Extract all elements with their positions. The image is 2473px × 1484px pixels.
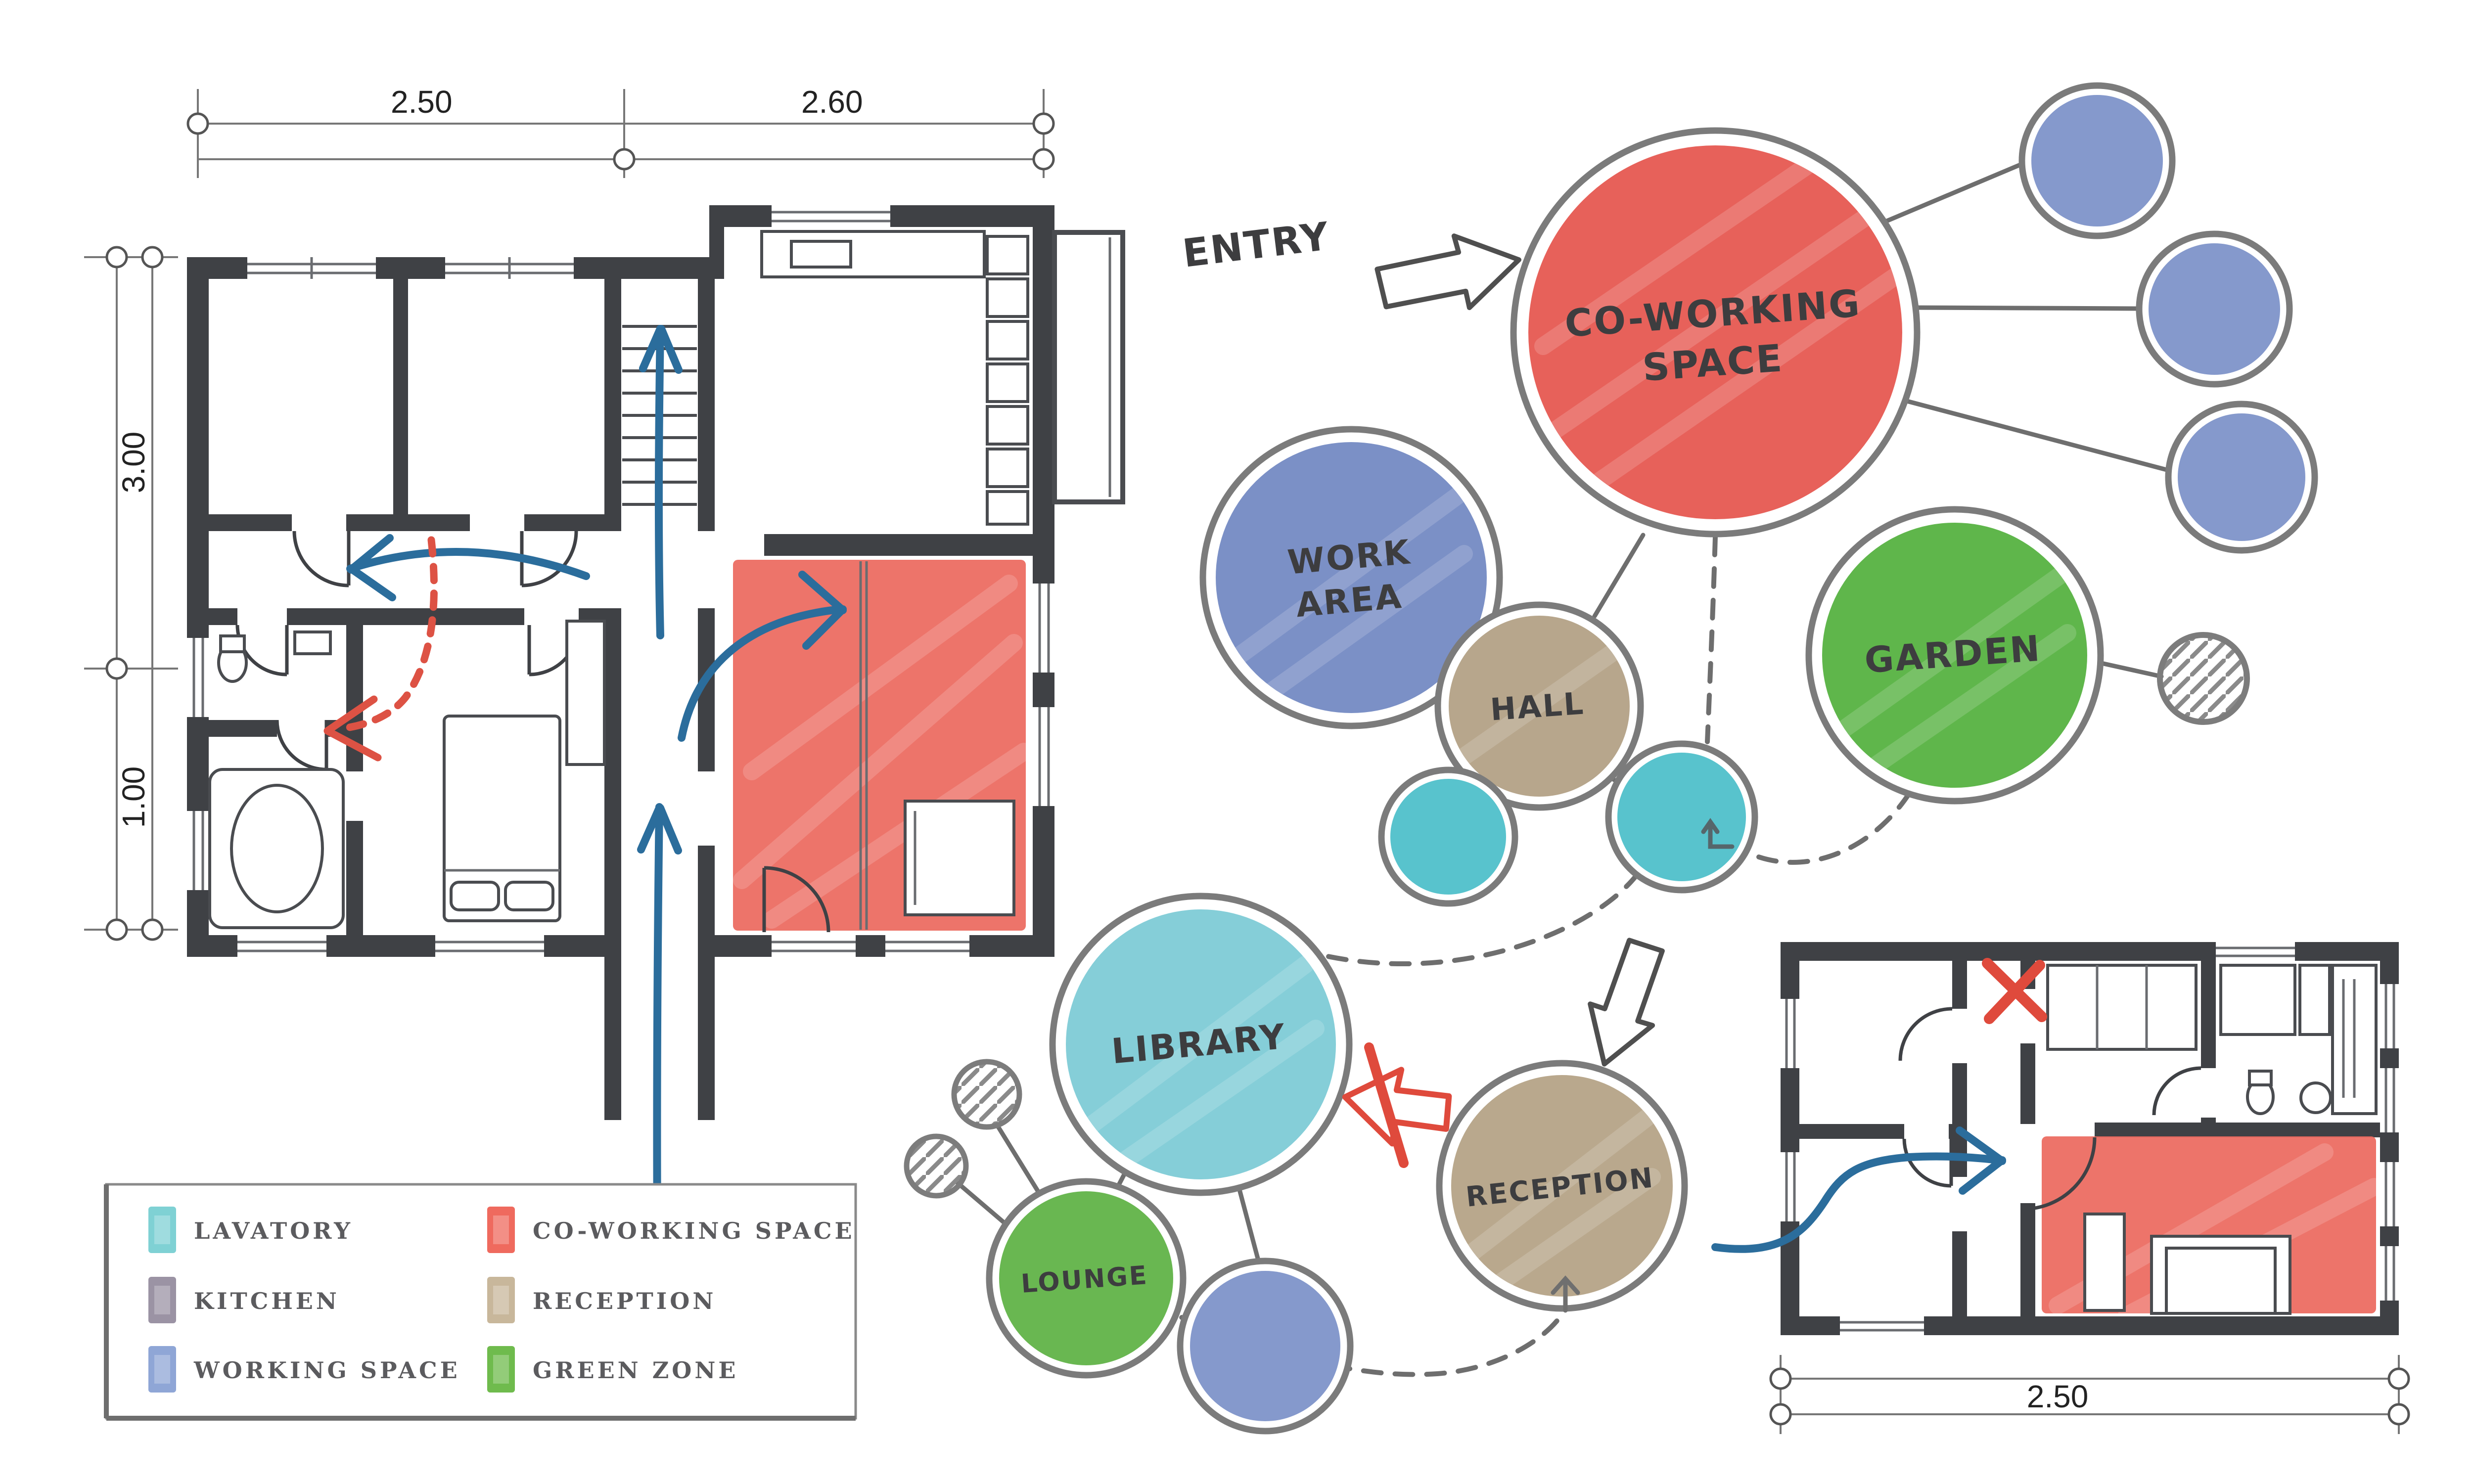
dim-100-label: 1.00 xyxy=(116,766,151,828)
concept-board: 2.50 2.60 3.00 1.00 xyxy=(0,0,2473,1484)
hall-label: HALL xyxy=(1489,685,1586,727)
svg-text:WORKING SPACE: WORKING SPACE xyxy=(193,1357,460,1384)
plan2-dim-label: 2.50 xyxy=(2027,1379,2089,1414)
svg-text:RECEPTION: RECEPTION xyxy=(533,1288,716,1314)
dim-250-label: 2.50 xyxy=(391,84,453,120)
bubble-lavatory-2 xyxy=(1608,744,1755,890)
dim-300-label: 3.00 xyxy=(116,432,151,494)
svg-text:GREEN ZONE: GREEN ZONE xyxy=(533,1357,738,1384)
hatched-bubble-garden xyxy=(2160,635,2247,722)
bubble-coworking: CO-WORKING SPACE xyxy=(1513,131,1917,534)
bubble-garden: GARDEN xyxy=(1809,509,2101,801)
dimension-top: 2.50 2.60 xyxy=(188,84,1053,178)
bubble-working-1 xyxy=(2022,86,2172,236)
svg-text:LAVATORY: LAVATORY xyxy=(194,1217,353,1244)
no-access-icon xyxy=(1339,1047,1455,1163)
entry-label: ENTRY xyxy=(1180,214,1332,276)
floorplan-proposed: 2.50 xyxy=(1715,942,2409,1434)
bubble-lounge: LOUNGE xyxy=(989,1181,1183,1375)
svg-text:CO-WORKING SPACE: CO-WORKING SPACE xyxy=(533,1217,855,1244)
bubble-library: LIBRARY xyxy=(1053,896,1349,1193)
hatched-bubble-lounge-2 xyxy=(907,1136,966,1196)
dimension-left: 3.00 1.00 xyxy=(84,247,178,940)
dim-260-label: 2.60 xyxy=(801,84,863,120)
down-arrow-icon xyxy=(1571,933,1680,1075)
bubble-working-4 xyxy=(1180,1261,1350,1431)
plan1-balcony xyxy=(1054,232,1123,502)
bubble-reception: RECEPTION xyxy=(1439,1063,1685,1310)
stairs-up-arrow xyxy=(659,329,660,635)
entry-arrow-icon xyxy=(1374,226,1525,321)
bubble-working-2 xyxy=(2139,234,2290,384)
hatched-bubble-lounge-1 xyxy=(954,1062,1019,1127)
svg-text:KITCHEN: KITCHEN xyxy=(194,1288,340,1314)
legend: LAVATORY KITCHEN WORKING SPACE CO-WORKIN… xyxy=(106,1184,856,1418)
left-arrow xyxy=(350,552,586,576)
plan2-dimension: 2.50 xyxy=(1771,1355,2409,1434)
bubble-lavatory-1 xyxy=(1381,770,1515,903)
bubble-working-3 xyxy=(2168,404,2315,550)
